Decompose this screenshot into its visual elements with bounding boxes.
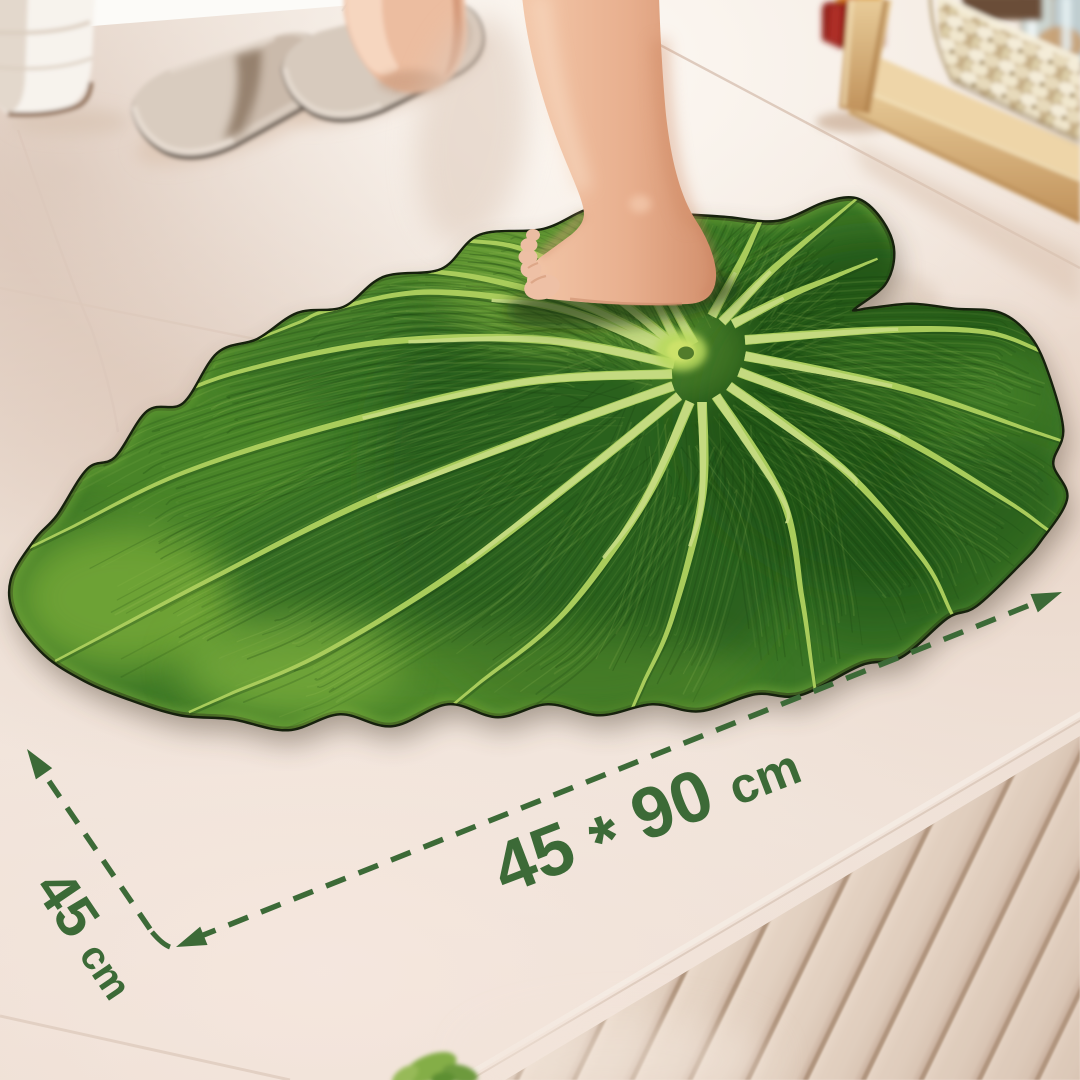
svg-text:45 * 90 cm: 45 * 90 cm bbox=[482, 720, 813, 919]
svg-text:45 cm: 45 cm bbox=[22, 859, 153, 1010]
